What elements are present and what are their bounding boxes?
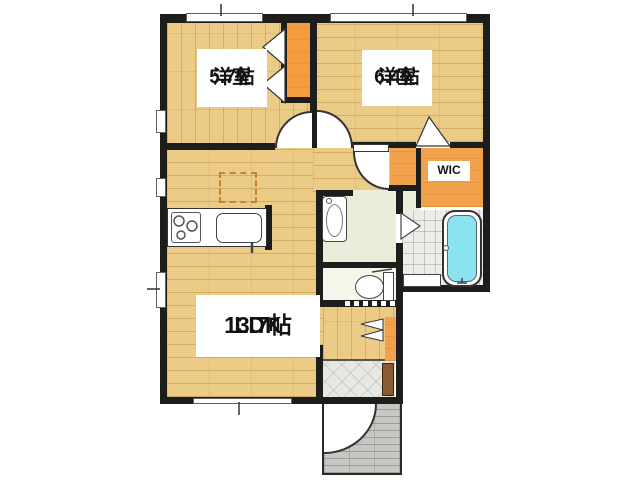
wic-name: WIC bbox=[437, 164, 460, 177]
wall-washroom-bath-b bbox=[396, 243, 403, 292]
bathtub-water bbox=[447, 215, 477, 282]
window-ldk-left bbox=[156, 272, 166, 308]
hall-storage-closet bbox=[390, 148, 417, 188]
wall-closet-bottom bbox=[281, 97, 317, 103]
wall-closet-west bbox=[281, 14, 287, 100]
wall-kitchen-top bbox=[160, 143, 275, 150]
bedroom1-closet bbox=[284, 20, 313, 100]
wall-washroom-toilet bbox=[316, 262, 396, 268]
wall-washroom-bath-a bbox=[396, 188, 403, 214]
toilet-sliding-door bbox=[345, 301, 395, 306]
wall-wic-west bbox=[416, 148, 421, 208]
window-bedroom2-top bbox=[330, 13, 467, 22]
bedroom2-label: 洋室 6.4帖 bbox=[362, 50, 432, 106]
bedroom1-size: 5.7帖 bbox=[209, 67, 254, 88]
wall-right-lower bbox=[396, 285, 403, 404]
washbasin-bowl bbox=[326, 204, 343, 237]
washroom-door-leaf bbox=[353, 144, 389, 152]
window-bedroom1-left bbox=[156, 110, 166, 133]
bath-counter bbox=[403, 274, 441, 287]
fridge-space bbox=[219, 172, 257, 203]
window-bedroom1-top bbox=[186, 13, 263, 22]
entry-cabinet bbox=[382, 363, 394, 396]
wall-bedroom2-bottom-b bbox=[450, 142, 483, 148]
wic-label: WIC bbox=[428, 161, 470, 181]
stove bbox=[171, 212, 201, 243]
floor-plan: 洋室 5.7帖 洋室 6.4帖 LDK 13.7帖 WIC bbox=[0, 0, 640, 480]
kitchen-sink bbox=[216, 213, 262, 243]
window-ldk-bottom bbox=[193, 398, 292, 404]
ldk-size: 13.7帖 bbox=[224, 313, 292, 339]
window-kitchen-left bbox=[156, 178, 166, 197]
wall-left bbox=[160, 14, 167, 404]
wall-right-upper bbox=[483, 14, 490, 292]
ldk-label: LDK 13.7帖 bbox=[196, 295, 320, 357]
toilet-tank bbox=[383, 272, 394, 301]
bedroom1-label: 洋室 5.7帖 bbox=[197, 49, 267, 107]
bedroom2-size: 6.4帖 bbox=[374, 67, 419, 88]
toilet-bowl bbox=[355, 275, 384, 299]
